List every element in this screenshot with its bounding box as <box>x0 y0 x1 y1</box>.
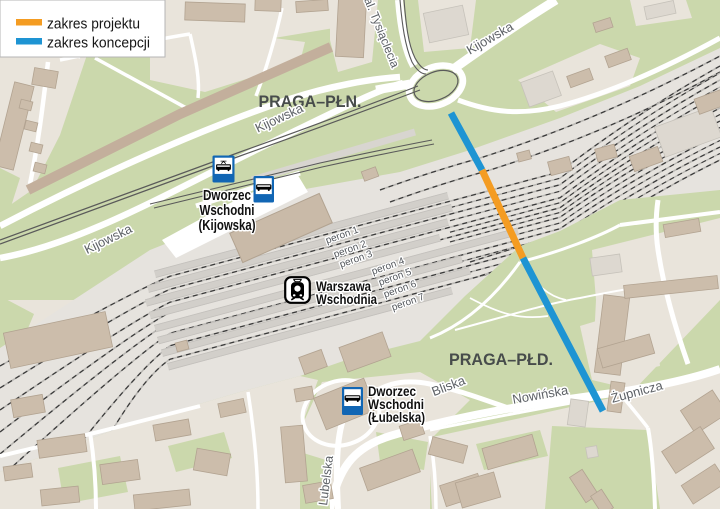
svg-text:(Kijowska): (Kijowska) <box>199 217 256 234</box>
svg-text:(Łubelska): (Łubelska) <box>368 410 425 425</box>
svg-text:PRAGA–PŁN.: PRAGA–PŁN. <box>259 92 362 111</box>
svg-text:PRAGA–PŁD.: PRAGA–PŁD. <box>449 350 553 369</box>
svg-text:zakres projektu: zakres projektu <box>47 17 140 33</box>
svg-text:zakres koncepcji: zakres koncepcji <box>47 36 150 52</box>
svg-text:Wschodnia: Wschodnia <box>316 292 377 307</box>
